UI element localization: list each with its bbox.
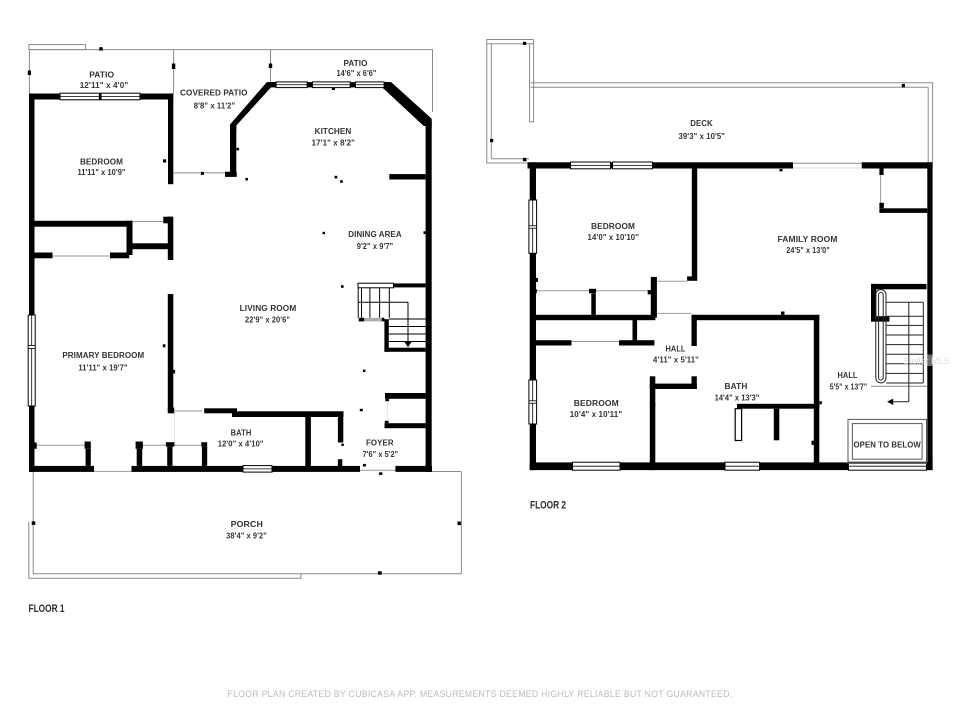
svg-text:FLOOR 2: FLOOR 2 [530, 500, 566, 512]
svg-text:DECK: DECK [690, 118, 713, 128]
svg-text:14'6" x 6'6": 14'6" x 6'6" [337, 68, 377, 78]
svg-text:DINING AREA: DINING AREA [348, 229, 401, 239]
svg-text:11'11" x 19'7": 11'11" x 19'7" [78, 362, 127, 372]
svg-text:PATIO: PATIO [344, 58, 368, 68]
svg-text:BEDROOM: BEDROOM [591, 221, 635, 231]
svg-text:HALL: HALL [838, 370, 858, 380]
svg-text:PORCH: PORCH [231, 519, 263, 529]
svg-text:COVERED PATIO: COVERED PATIO [180, 87, 248, 97]
svg-text:10'4" x 10'11": 10'4" x 10'11" [570, 409, 623, 419]
svg-text:9'2" x 9'7": 9'2" x 9'7" [357, 241, 394, 251]
svg-text:8'8" x 11'2": 8'8" x 11'2" [194, 100, 235, 110]
svg-text:17'1" x 8'2": 17'1" x 8'2" [312, 138, 355, 148]
svg-text:HALL: HALL [666, 344, 686, 354]
svg-text:BATH: BATH [231, 427, 252, 437]
svg-text:BATH: BATH [725, 381, 748, 391]
svg-text:PRIMARY BEDROOM: PRIMARY BEDROOM [62, 350, 144, 360]
svg-text:BEDROOM: BEDROOM [574, 398, 619, 408]
svg-text:38'4" x 9'2": 38'4" x 9'2" [226, 531, 267, 541]
svg-text:24'5" x 13'0": 24'5" x 13'0" [786, 245, 830, 255]
svg-text:BEDROOM: BEDROOM [80, 157, 123, 167]
svg-text:11'11" x 10'9": 11'11" x 10'9" [77, 167, 125, 177]
svg-text:39'3" x 10'5": 39'3" x 10'5" [679, 131, 726, 141]
svg-text:LIVING ROOM: LIVING ROOM [240, 303, 297, 313]
svg-text:FLOOR PLAN CREATED BY CUBICASA: FLOOR PLAN CREATED BY CUBICASA APP. MEAS… [228, 689, 733, 700]
svg-text:7'6" x 5'2": 7'6" x 5'2" [363, 449, 399, 459]
svg-text:5'5" x 13'7": 5'5" x 13'7" [830, 382, 868, 392]
svg-text:FLOOR 1: FLOOR 1 [29, 603, 65, 615]
svg-text:Stellar MLS: Stellar MLS [903, 356, 950, 366]
svg-text:FAMILY ROOM: FAMILY ROOM [778, 234, 838, 244]
svg-text:4'11" x 5'11": 4'11" x 5'11" [653, 355, 699, 365]
svg-text:KITCHEN: KITCHEN [315, 126, 352, 136]
svg-text:FOYER: FOYER [366, 438, 394, 448]
svg-text:PATIO: PATIO [89, 69, 114, 79]
svg-text:12'0" x 4'10": 12'0" x 4'10" [218, 439, 264, 449]
svg-text:OPEN TO BELOW: OPEN TO BELOW [854, 440, 921, 450]
svg-text:22'9" x 20'6": 22'9" x 20'6" [245, 315, 290, 325]
svg-text:14'0" x 10'10": 14'0" x 10'10" [588, 232, 640, 242]
svg-text:12'11" x 4'0": 12'11" x 4'0" [80, 80, 129, 90]
svg-text:14'4" x 13'3": 14'4" x 13'3" [715, 393, 760, 403]
